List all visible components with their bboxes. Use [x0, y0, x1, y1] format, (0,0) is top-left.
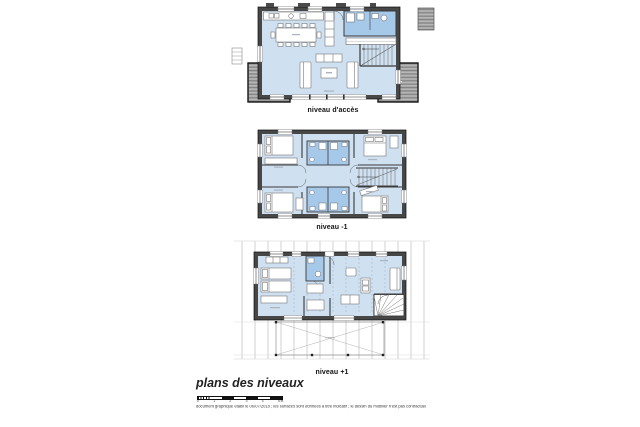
floor-plan-access-level	[230, 2, 436, 105]
wc-icon	[372, 14, 379, 19]
plan-label-plus-1: niveau +1	[315, 369, 348, 376]
bathroom	[344, 11, 396, 36]
sheet-title: plans des niveaux	[196, 376, 304, 390]
winder-staircase	[374, 295, 404, 317]
bathrooms-lower	[307, 187, 349, 212]
shower-icon	[347, 13, 355, 22]
exterior-steps-left	[232, 48, 242, 64]
washbasin-icon	[381, 15, 387, 21]
wc-icon	[308, 258, 314, 263]
floor-plan-level-minus-1	[252, 128, 412, 223]
plan-label-minus-1: niveau -1	[316, 224, 347, 231]
scale-ticks: 0 1 2 3 4 5 m	[197, 400, 283, 403]
side-deck-top-right	[418, 8, 434, 30]
floor-plan-level-plus-1	[228, 238, 436, 366]
dining-table	[271, 24, 321, 47]
plan-label-access: niveau d'accès	[308, 107, 359, 114]
plan-sheet: niveau d'accès	[0, 0, 640, 427]
bathrooms-upper	[307, 141, 349, 165]
bedroom-top-left	[265, 136, 297, 168]
disclaimer-text: document graphique établi le 06/07/2018 …	[196, 405, 426, 409]
roof-terrace	[275, 321, 384, 356]
washbasin-icon	[315, 271, 321, 277]
bench	[346, 38, 396, 45]
